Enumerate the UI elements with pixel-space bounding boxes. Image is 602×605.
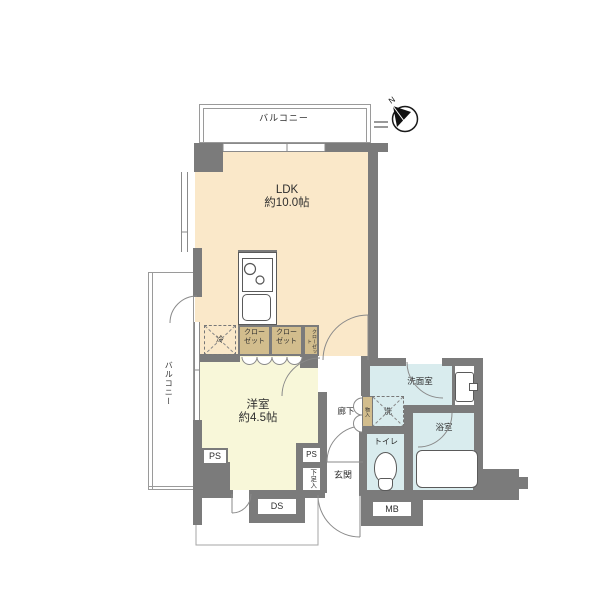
wall-segment: [300, 356, 318, 368]
ldk-name: LDK: [227, 184, 347, 197]
western-name: 洋室: [198, 399, 318, 412]
wall-segment: [368, 150, 378, 366]
wall-segment: [195, 462, 230, 492]
fridge-label: 冷: [215, 335, 225, 344]
wall-segment: [404, 405, 413, 496]
ps-right-box: PS: [301, 446, 322, 464]
wall-segment: [359, 426, 367, 496]
entrance-label: 玄関: [326, 470, 360, 480]
bathtub: [416, 450, 478, 488]
closet-b-label: クローゼット: [273, 328, 300, 346]
ps-right-label: PS: [306, 450, 317, 459]
window-top: [223, 143, 325, 152]
balcony-left-rail-bottom-inner: [148, 486, 194, 487]
balcony-left-rail-inner: [152, 272, 153, 490]
wall-segment: [194, 143, 223, 172]
balcony-top-label: バルコニー: [234, 113, 334, 123]
mb-label: MB: [385, 504, 399, 514]
wall-segment: [194, 354, 240, 362]
floor-plan: バルコニー バルコニー: [0, 0, 602, 605]
corridor-label: 廊下: [329, 407, 363, 417]
wall-segment: [361, 426, 410, 434]
mb-box: MB: [371, 500, 413, 518]
ds-box: DS: [256, 497, 298, 516]
compass-icon: N: [387, 95, 418, 132]
laundry-label: 洗: [383, 407, 393, 416]
stove: [242, 258, 273, 292]
balcony-partition-mark: [374, 122, 388, 127]
toilet-label: トイレ: [368, 437, 404, 446]
laundry-space: 洗: [372, 396, 404, 427]
wall-segment: [193, 248, 202, 297]
storage-small-label: 物入: [364, 400, 369, 424]
fridge-space: 冷: [204, 325, 236, 355]
shoe-box-label: 下足入: [308, 469, 315, 489]
balcony-left-label: バルコニー: [164, 348, 173, 418]
ldk-label: LDK 約10.0帖: [227, 184, 347, 210]
closet-c-label: クローゼット: [306, 327, 316, 355]
wall-segment: [519, 477, 528, 489]
shoe-box: 下足入: [301, 466, 322, 492]
ps-left-box: PS: [202, 448, 228, 465]
wall-segment: [368, 358, 406, 366]
bathroom-label: 浴室: [426, 423, 462, 433]
ldk-size: 約10.0帖: [227, 197, 347, 210]
vanity-handle: [469, 383, 478, 391]
wall-segment: [193, 490, 233, 498]
ps-left-label: PS: [209, 451, 221, 461]
washroom-label: 洗面室: [398, 377, 442, 387]
western-label: 洋室 約4.5帖: [198, 399, 318, 425]
kitchen-sink: [242, 294, 271, 321]
closet-a-label: クローゼット: [241, 328, 268, 346]
compass-north-label: N: [387, 95, 397, 106]
wall-segment: [318, 392, 327, 448]
ds-label: DS: [271, 501, 284, 511]
toilet-base: [378, 478, 393, 491]
western-size: 約4.5帖: [198, 412, 318, 425]
window-ldk-left: [181, 172, 188, 252]
wall-segment: [412, 405, 481, 413]
